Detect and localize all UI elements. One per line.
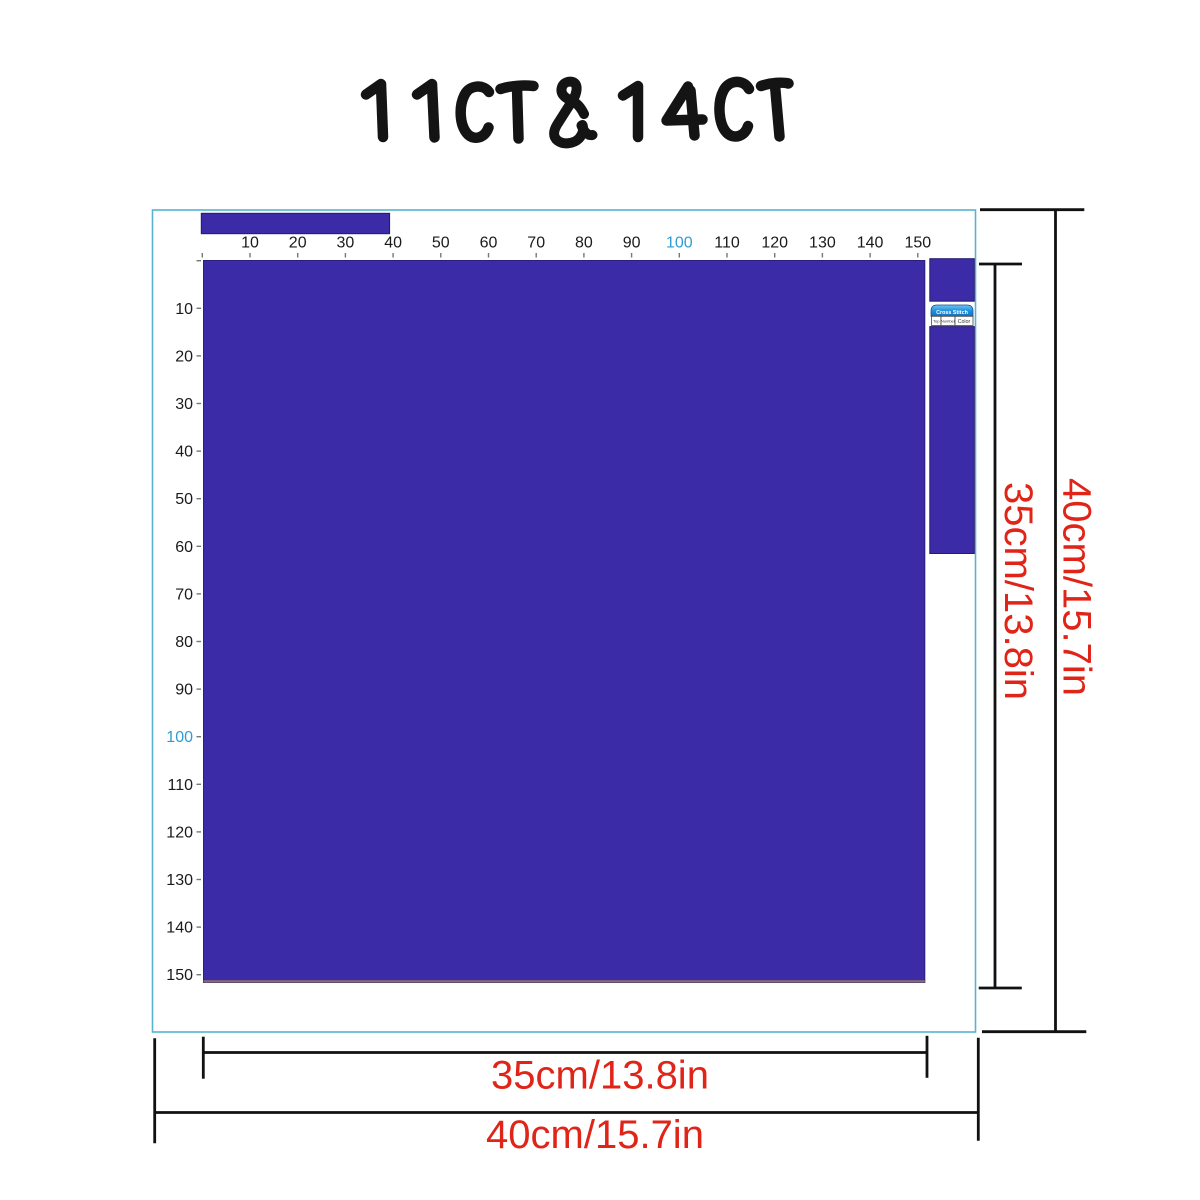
svg-text:Number: Number [941, 318, 956, 323]
svg-text:Cross Stitch: Cross Stitch [936, 310, 968, 316]
svg-text:80: 80 [175, 634, 193, 651]
svg-text:70: 70 [527, 235, 545, 252]
svg-text:50: 50 [175, 491, 193, 508]
svg-text:140: 140 [166, 920, 193, 937]
svg-text:35cm/13.8in: 35cm/13.8in [996, 482, 1040, 700]
svg-text:20: 20 [289, 235, 307, 252]
svg-text:150: 150 [166, 967, 193, 984]
svg-text:110: 110 [714, 235, 740, 252]
svg-text:40cm/15.7in: 40cm/15.7in [1055, 478, 1099, 696]
svg-text:90: 90 [623, 235, 641, 252]
svg-text:40cm/15.7in: 40cm/15.7in [486, 1113, 704, 1157]
svg-text:10: 10 [175, 301, 193, 318]
svg-text:30: 30 [175, 396, 193, 413]
svg-text:130: 130 [809, 235, 836, 252]
svg-text:150: 150 [904, 235, 931, 252]
svg-text:120: 120 [761, 235, 788, 252]
svg-text:80: 80 [575, 235, 593, 252]
svg-text:40: 40 [384, 235, 402, 252]
svg-text:100: 100 [166, 729, 193, 746]
svg-text:Color: Color [958, 319, 971, 325]
svg-text:140: 140 [857, 235, 884, 252]
svg-text:70: 70 [175, 586, 193, 603]
svg-text:40: 40 [175, 444, 193, 461]
svg-text:Top: Top [933, 318, 940, 323]
svg-text:35cm/13.8in: 35cm/13.8in [491, 1054, 709, 1098]
svg-text:130: 130 [166, 872, 193, 889]
svg-text:100: 100 [666, 235, 693, 252]
svg-text:30: 30 [337, 235, 355, 252]
svg-text:60: 60 [480, 235, 498, 252]
svg-text:120: 120 [166, 824, 193, 841]
svg-text:90: 90 [175, 682, 193, 699]
svg-text:110: 110 [167, 777, 193, 794]
svg-text:20: 20 [175, 348, 193, 365]
svg-text:50: 50 [432, 235, 450, 252]
svg-text:10: 10 [241, 235, 259, 252]
svg-text:60: 60 [175, 539, 193, 556]
